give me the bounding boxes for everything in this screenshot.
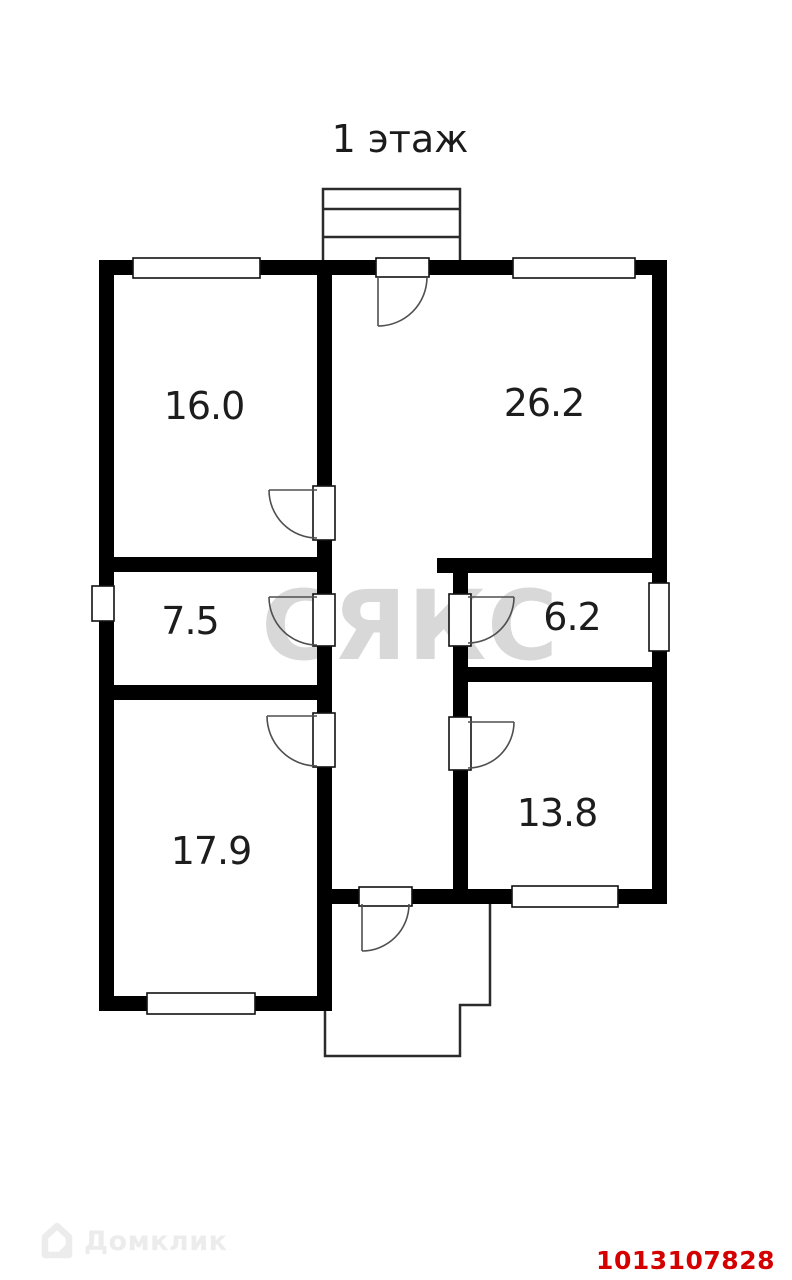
entrance-porch-steps (323, 189, 460, 263)
door-leaf-room7 (313, 594, 335, 646)
door-swings (267, 277, 514, 951)
listing-id: 1013107828 (596, 1246, 775, 1275)
door-leaf-room13 (449, 717, 471, 770)
door-leaf-room17 (313, 713, 335, 767)
window-room26-top (513, 258, 635, 278)
door-leaf-room16 (313, 486, 335, 540)
door-swing-room7 (269, 597, 317, 645)
room-area-label-13-8: 13.8 (517, 791, 598, 835)
window-room17-bottom (147, 993, 255, 1014)
domclick-brand-text: Домклик (84, 1226, 228, 1257)
window-room16-top (133, 258, 260, 278)
door-leaf-room6 (449, 594, 471, 646)
wall-exterior-right (652, 260, 667, 904)
door-swing-entrance (378, 277, 427, 326)
room-area-label-7-5: 7.5 (161, 599, 218, 643)
door-leaf-entrance (376, 258, 429, 277)
door-leaves (313, 258, 471, 906)
window-room13-bottom (512, 886, 618, 907)
door-swing-room13 (468, 722, 514, 768)
door-swing-room17 (267, 716, 317, 766)
domclick-logo: Домклик (36, 1220, 228, 1262)
rear-vestibule-outline (325, 898, 490, 1056)
floor-title: 1 этаж (332, 117, 469, 161)
wall-between-16-and-7 (99, 557, 332, 572)
window-room7-left (92, 586, 114, 621)
domclick-house-icon (36, 1220, 78, 1262)
wall-between-7-and-17 (99, 685, 332, 700)
door-swing-room6 (468, 597, 514, 643)
floorplan-page: СЯКС (0, 0, 792, 1280)
room-area-label-16-0: 16.0 (164, 384, 245, 428)
room-area-label-6-2: 6.2 (543, 595, 600, 639)
room-area-label-26-2: 26.2 (504, 381, 585, 425)
wall-between-26-and-6 (437, 558, 667, 573)
floorplan-drawing (0, 0, 792, 1280)
window-room6-right (649, 583, 669, 651)
wall-exterior-left (99, 260, 114, 1011)
door-leaf-backdoor (359, 887, 412, 906)
room-area-label-17-9: 17.9 (171, 829, 252, 873)
wall-between-6-and-13 (453, 667, 667, 682)
door-swing-room16 (269, 490, 317, 538)
